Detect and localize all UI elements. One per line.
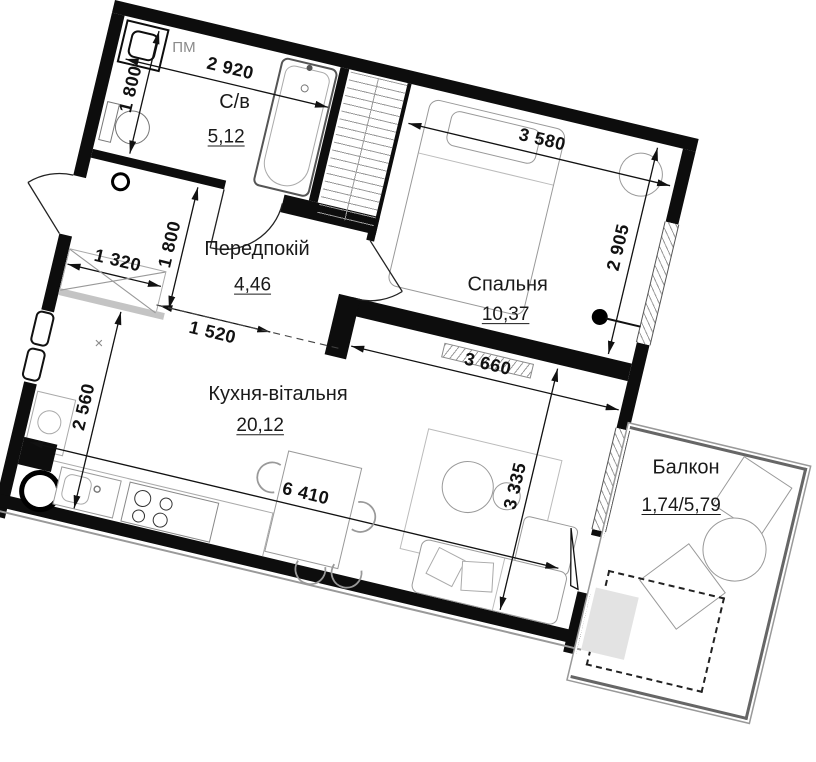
washing-machine-label: ПМ <box>172 39 195 56</box>
floor-plan: С/в 5,12 ПМ Передпокій 4,46 Спальня 10,3… <box>0 0 816 747</box>
shaft-marker: × <box>95 335 104 352</box>
plan-overlay <box>0 0 816 762</box>
hallway-name: Передпокій <box>204 238 309 261</box>
bedroom-door-leaf <box>360 241 412 292</box>
kitchen-area: 20,12 <box>236 415 284 437</box>
column-marker-line <box>606 318 641 326</box>
chair-bottom <box>292 560 326 587</box>
bedroom-door-arc <box>356 282 402 309</box>
floor-plan-canvas: С/в 5,12 ПМ Передпокій 4,46 Спальня 10,3… <box>0 0 816 723</box>
balcony-name: Балкон <box>653 457 720 480</box>
kitchen-name: Кухня-вітальня <box>208 383 347 406</box>
balcony-door-leaf <box>558 528 592 589</box>
chair-bottom-right <box>329 564 363 591</box>
bedroom-name: Спальня <box>468 273 548 296</box>
balcony-area: 1,74/5,79 <box>642 495 721 517</box>
bedroom-area: 10,37 <box>482 304 530 326</box>
entry-door-arc <box>28 165 73 192</box>
bathroom-name: С/в <box>219 91 250 114</box>
chair-left <box>254 459 281 493</box>
sink-faucet <box>94 486 101 493</box>
hallway-area: 4,46 <box>234 275 271 297</box>
dim-line-kitchen-length <box>30 442 558 568</box>
entry-door-leaf <box>18 182 69 233</box>
bathroom-area: 5,12 <box>208 127 245 149</box>
chair-right <box>352 501 379 535</box>
